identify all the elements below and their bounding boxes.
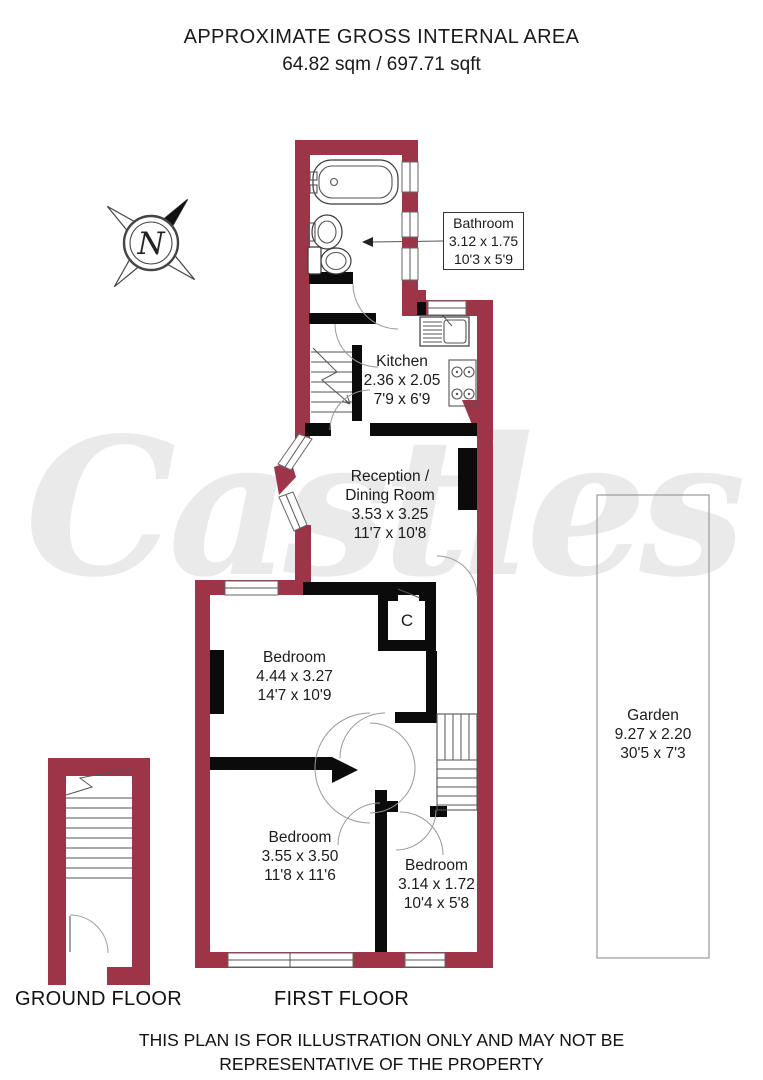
bedroom2-label: Bedroom 3.55 x 3.50 11'8 x 11'6: [225, 828, 375, 885]
room-name-line2: Dining Room: [310, 486, 470, 505]
room-name: Reception /: [310, 467, 470, 486]
bathroom-callout: Bathroom 3.12 x 1.75 10'3 x 5'9: [443, 212, 524, 270]
stairs-landing: [437, 714, 477, 810]
room-name: Bedroom: [374, 856, 499, 875]
compass-icon: N: [71, 163, 232, 324]
disclaimer-line2: REPRESENTATIVE OF THE PROPERTY: [0, 1054, 763, 1075]
page-title: APPROXIMATE GROSS INTERNAL AREA: [0, 26, 763, 49]
room-dims-metric: 9.27 x 2.20: [597, 725, 709, 744]
kitchen-sink-icon: [420, 315, 469, 347]
room-name: Garden: [597, 706, 709, 725]
room-dims-imperial: 7'9 x 6'9: [337, 390, 467, 409]
closet-label: C: [394, 611, 420, 630]
room-dims-metric: 3.55 x 3.50: [225, 847, 375, 866]
room-dims-imperial: 30'5 x 7'3: [597, 744, 709, 763]
room-dims-imperial: 11'8 x 11'6: [225, 866, 375, 885]
toilet-icon: [308, 247, 351, 274]
room-name: Bedroom: [222, 648, 367, 667]
gross-internal-area: 64.82 sqm / 697.71 sqft: [0, 54, 763, 76]
room-dims-imperial: 10'3 x 5'9: [444, 250, 523, 268]
room-dims-imperial: 11'7 x 10'8: [310, 524, 470, 543]
room-name: Bedroom: [225, 828, 375, 847]
bedroom1-label: Bedroom 4.44 x 3.27 14'7 x 10'9: [222, 648, 367, 705]
compass-north-letter: N: [136, 226, 166, 262]
bathtub-icon: [310, 160, 398, 204]
kitchen-label: Kitchen 2.36 x 2.05 7'9 x 6'9: [337, 352, 467, 409]
room-dims-metric: 3.53 x 3.25: [310, 505, 470, 524]
garden-label: Garden 9.27 x 2.20 30'5 x 7'3: [597, 706, 709, 763]
room-dims-metric: 3.12 x 1.75: [444, 232, 523, 250]
room-name: Bathroom: [444, 214, 523, 232]
disclaimer-line1: THIS PLAN IS FOR ILLUSTRATION ONLY AND M…: [0, 1030, 763, 1051]
room-dims-metric: 2.36 x 2.05: [337, 371, 467, 390]
room-dims-imperial: 10'4 x 5'8: [374, 894, 499, 913]
floorplan-page: APPROXIMATE GROSS INTERNAL AREA 64.82 sq…: [0, 0, 763, 1080]
room-dims-metric: 3.14 x 1.72: [374, 875, 499, 894]
bedroom3-label: Bedroom 3.14 x 1.72 10'4 x 5'8: [374, 856, 499, 913]
room-dims-imperial: 14'7 x 10'9: [222, 686, 367, 705]
basin-icon: [308, 215, 342, 249]
ground-floor-unit: [48, 758, 150, 985]
first-floor-caption: FIRST FLOOR: [274, 988, 409, 1011]
ground-floor-caption: GROUND FLOOR: [15, 988, 182, 1011]
room-name: Kitchen: [337, 352, 467, 371]
reception-label: Reception / Dining Room 3.53 x 3.25 11'7…: [310, 467, 470, 543]
room-dims-metric: 4.44 x 3.27: [222, 667, 367, 686]
